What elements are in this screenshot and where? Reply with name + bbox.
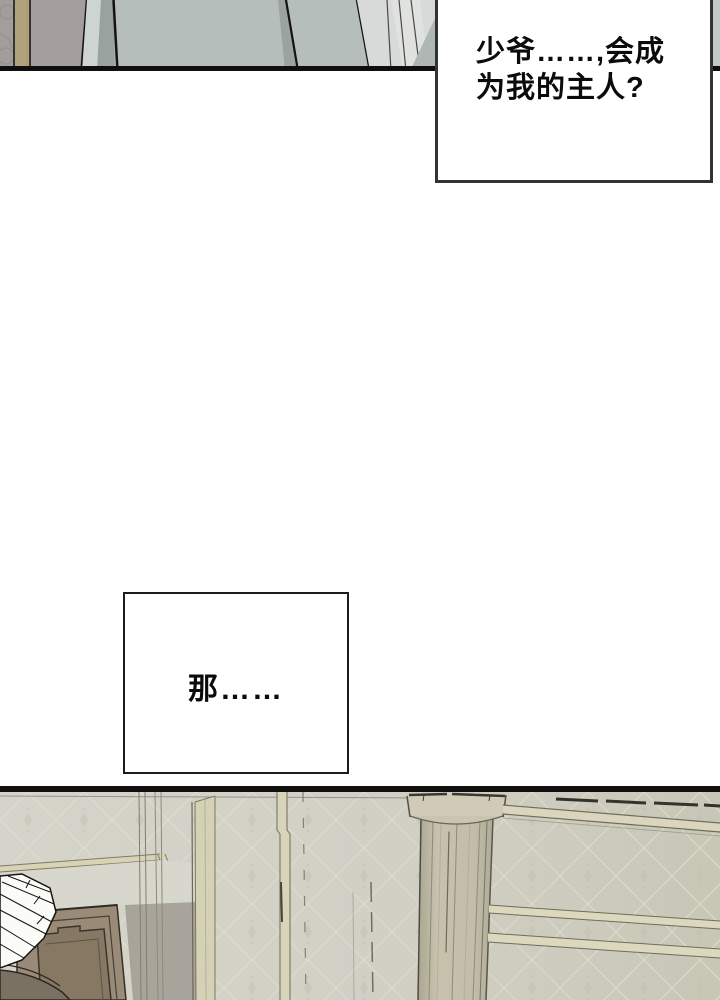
speech-bubble-2: 那…… [123, 592, 349, 774]
panel-bottom-artwork [0, 792, 720, 1000]
column-capital [407, 794, 506, 824]
wall-left [0, 0, 86, 71]
tan-trim-stripe [14, 0, 30, 71]
doorway-shadow [125, 902, 196, 1000]
speech-bubble-1: 少爷……,会成 为我的主人? [435, 0, 713, 183]
speech-bubble-2-text: 那…… [188, 658, 284, 708]
bubble-1-line-2: 为我的主人? [476, 70, 710, 106]
bubble-1-line-1: 少爷……,会成 [476, 34, 710, 70]
speech-bubble-1-text: 少爷……,会成 为我的主人? [438, 0, 710, 106]
comic-page: 少爷……,会成 为我的主人? 那…… [0, 0, 720, 1000]
panel-bottom [0, 786, 720, 1000]
